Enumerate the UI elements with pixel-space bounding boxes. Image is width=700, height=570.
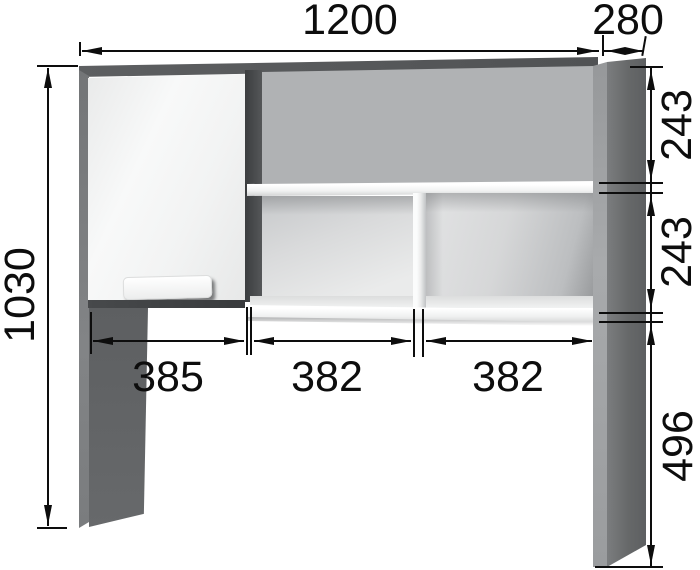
dim-tick <box>422 309 424 357</box>
dim-label-right-lower: 496 <box>656 368 700 524</box>
dim-tick <box>599 192 663 194</box>
arrowhead-left-icon <box>607 47 625 55</box>
vertical-divider <box>413 193 426 308</box>
dim-label-left-height: 1030 <box>0 217 42 373</box>
lower-right-compartment-interior <box>426 193 594 300</box>
dim-tick <box>37 65 78 67</box>
arrowhead-down-icon <box>647 289 655 309</box>
dim-line-right <box>650 67 652 567</box>
arrowhead-left-icon <box>426 337 446 345</box>
arrowhead-left-icon <box>93 337 113 345</box>
dim-tick <box>246 307 248 355</box>
dim-label-right-middle: 243 <box>655 174 699 330</box>
dim-tick <box>413 309 415 357</box>
arrowhead-right-icon <box>224 337 244 345</box>
arrowhead-left-icon <box>254 337 274 345</box>
dim-tick <box>599 182 663 184</box>
dim-tick <box>250 307 252 355</box>
right-panel-front-edge <box>593 62 607 567</box>
dim-tick <box>599 321 663 323</box>
hutch-left-side-edge <box>79 70 89 528</box>
dim-tick <box>90 312 92 354</box>
arrowhead-right-icon <box>572 337 592 345</box>
dim-line-left-height <box>47 68 49 526</box>
arrowhead-left-icon <box>82 47 102 55</box>
arrowhead-up-icon <box>647 325 655 345</box>
arrowhead-right-icon <box>577 47 597 55</box>
arrowhead-down-icon <box>44 505 52 525</box>
arrowhead-down-icon <box>647 160 655 180</box>
cabinet-bottom-shadow <box>88 300 245 308</box>
arrowhead-right-icon <box>391 337 411 345</box>
dim-label-bottom-center: 382 <box>252 355 402 399</box>
dim-tick <box>79 42 81 56</box>
lower-left-compartment-interior <box>262 196 413 300</box>
door-handle <box>123 275 213 300</box>
dim-line-bottom-left <box>93 340 244 342</box>
arrowhead-up-icon <box>647 70 655 90</box>
dim-line-bottom-center <box>254 340 411 342</box>
arrowhead-up-icon <box>44 68 52 88</box>
dim-tick <box>599 312 663 314</box>
dimension-drawing-canvas: 1200 280 1030 243 243 496 385 382 382 <box>0 0 700 570</box>
dim-line-bottom-right <box>426 340 592 342</box>
dim-tick <box>595 566 663 568</box>
dim-line-top-width <box>82 50 599 52</box>
dim-label-top-width: 1200 <box>250 0 450 42</box>
arrowhead-up-icon <box>647 196 655 216</box>
dim-tick <box>37 527 67 529</box>
arrowhead-down-icon <box>647 545 655 565</box>
dim-label-bottom-left: 385 <box>93 355 243 399</box>
hutch-door <box>88 74 245 302</box>
dim-label-top-depth: 280 <box>578 0 678 42</box>
top-compartment-interior <box>262 64 594 188</box>
dim-label-bottom-right: 382 <box>433 355 583 399</box>
arrowhead-right-icon <box>625 47 643 55</box>
